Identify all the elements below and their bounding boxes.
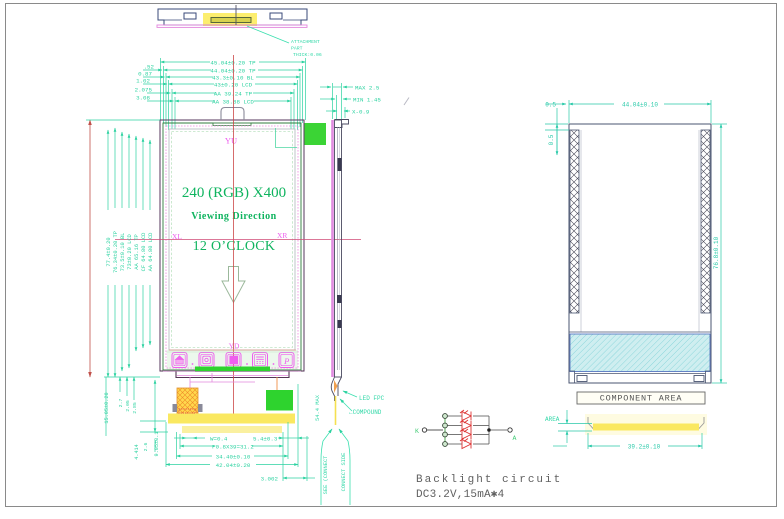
svg-text:A: A xyxy=(513,435,517,442)
svg-text:2.7: 2.7 xyxy=(118,399,124,408)
svg-text:YD: YD xyxy=(229,342,240,351)
svg-text:XR: XR xyxy=(277,231,287,240)
svg-text:3.08: 3.08 xyxy=(136,95,150,102)
svg-text:4.414: 4.414 xyxy=(134,444,140,460)
svg-text:44.04±0.10: 44.04±0.10 xyxy=(622,102,658,109)
svg-text:2.6: 2.6 xyxy=(143,443,149,452)
svg-text:THICK:0.06: THICK:0.06 xyxy=(293,52,322,58)
svg-text:AA 64.80 LCD: AA 64.80 LCD xyxy=(148,233,154,272)
svg-text:MAX 2.5: MAX 2.5 xyxy=(355,85,380,92)
svg-text:0.5: 0.5 xyxy=(545,102,556,109)
svg-text:CF 64.80 LCD: CF 64.80 LCD xyxy=(141,233,147,272)
svg-text:P0.8X39=31.2: P0.8X39=31.2 xyxy=(212,444,254,451)
svg-text:0.87: 0.87 xyxy=(138,71,152,78)
svg-text:73±0.20 LCD: 73±0.20 LCD xyxy=(127,234,133,270)
svg-text:AA 65.16 TP: AA 65.16 TP xyxy=(134,234,140,270)
svg-text:15.05±0.20: 15.05±0.20 xyxy=(104,392,110,423)
svg-text:Backlight circuit: Backlight circuit xyxy=(416,474,562,486)
svg-text:Viewing Direction: Viewing Direction xyxy=(191,211,276,222)
svg-text:SEE (CONNECT: SEE (CONNECT xyxy=(323,455,329,495)
svg-text:12 O’CLOCK: 12 O’CLOCK xyxy=(193,239,276,254)
svg-text:5.4±0.3: 5.4±0.3 xyxy=(253,436,278,443)
svg-text:AREA: AREA xyxy=(545,416,560,423)
svg-text:76.34±0.20 TP: 76.34±0.20 TP xyxy=(113,231,119,273)
svg-text:34.40±0.10: 34.40±0.10 xyxy=(216,454,251,461)
svg-text:77.4±0.20: 77.4±0.20 xyxy=(106,237,112,266)
svg-text:76.8±0.10: 76.8±0.10 xyxy=(713,236,720,269)
svg-text:W=0.4: W=0.4 xyxy=(210,436,228,443)
svg-text:2.85: 2.85 xyxy=(132,402,138,414)
svg-text:YU: YU xyxy=(225,136,237,146)
svg-text:2.05: 2.05 xyxy=(125,400,131,412)
svg-text:K: K xyxy=(415,428,419,435)
svg-text:X-0.9: X-0.9 xyxy=(352,109,370,116)
svg-text:MIN 1.45: MIN 1.45 xyxy=(353,97,381,104)
svg-text:42.04±0.20: 42.04±0.20 xyxy=(216,462,251,469)
svg-text:LED FPC: LED FPC xyxy=(359,395,385,402)
svg-text:P: P xyxy=(283,356,289,366)
svg-text:←COMPOUND: ←COMPOUND xyxy=(349,409,382,416)
svg-text:0.5: 0.5 xyxy=(548,134,555,145)
svg-text:9.05±0.1: 9.05±0.1 xyxy=(154,432,160,457)
svg-text:DC3.2V,15mA✱4: DC3.2V,15mA✱4 xyxy=(416,489,505,501)
svg-text:COMPONENT AREA: COMPONENT AREA xyxy=(600,394,683,404)
svg-text:240 (RGB) X400: 240 (RGB) X400 xyxy=(182,185,286,201)
svg-text:39.2±0.10: 39.2±0.10 xyxy=(628,444,661,451)
svg-text:CONNECT SIDE: CONNECT SIDE xyxy=(341,453,347,492)
svg-text:.52: .52 xyxy=(144,64,155,71)
svg-text:PART: PART xyxy=(291,46,303,52)
svg-text:1.02: 1.02 xyxy=(136,78,150,85)
svg-text:2.075: 2.075 xyxy=(135,87,153,94)
svg-text:ATTACHMENT: ATTACHMENT xyxy=(291,39,320,45)
svg-text:73.5±0.10 BL: 73.5±0.10 BL xyxy=(120,233,126,272)
svg-text:3.002: 3.002 xyxy=(261,476,279,483)
svg-text:54.4 MAX: 54.4 MAX xyxy=(315,394,321,421)
